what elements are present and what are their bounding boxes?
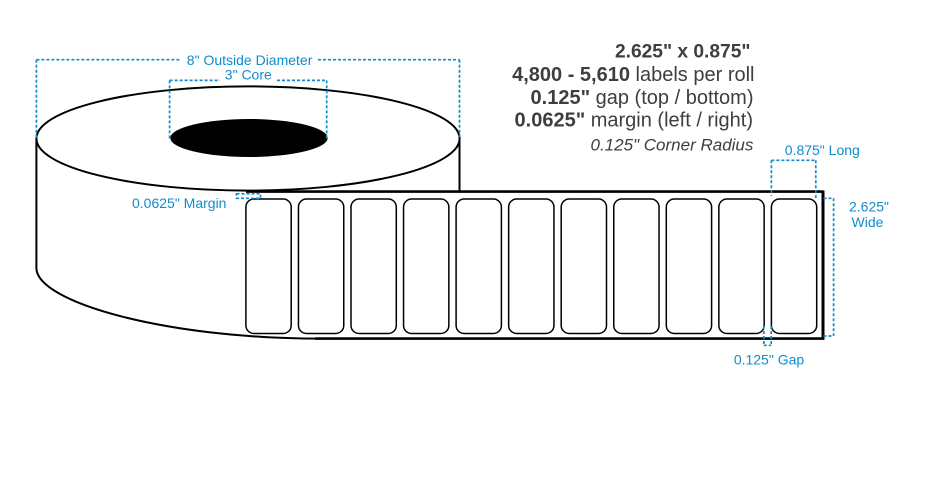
svg-text:Wide: Wide xyxy=(852,214,884,230)
svg-text:0.0625" margin (left / right): 0.0625" margin (left / right) xyxy=(515,109,753,131)
svg-text:0.125" Gap: 0.125" Gap xyxy=(734,351,805,367)
svg-text:3" Core: 3" Core xyxy=(225,67,272,83)
svg-text:2.625" x 0.875": 2.625" x 0.875" xyxy=(615,41,751,62)
svg-text:0.0625" Margin: 0.0625" Margin xyxy=(132,195,226,211)
svg-text:0.125" Corner Radius: 0.125" Corner Radius xyxy=(590,135,753,154)
svg-text:0.875" Long: 0.875" Long xyxy=(785,142,860,158)
svg-text:2.625": 2.625" xyxy=(849,199,889,215)
svg-text:0.125" gap (top / bottom): 0.125" gap (top / bottom) xyxy=(531,87,754,109)
svg-text:4,800 - 5,610 labels per roll: 4,800 - 5,610 labels per roll xyxy=(512,64,754,86)
